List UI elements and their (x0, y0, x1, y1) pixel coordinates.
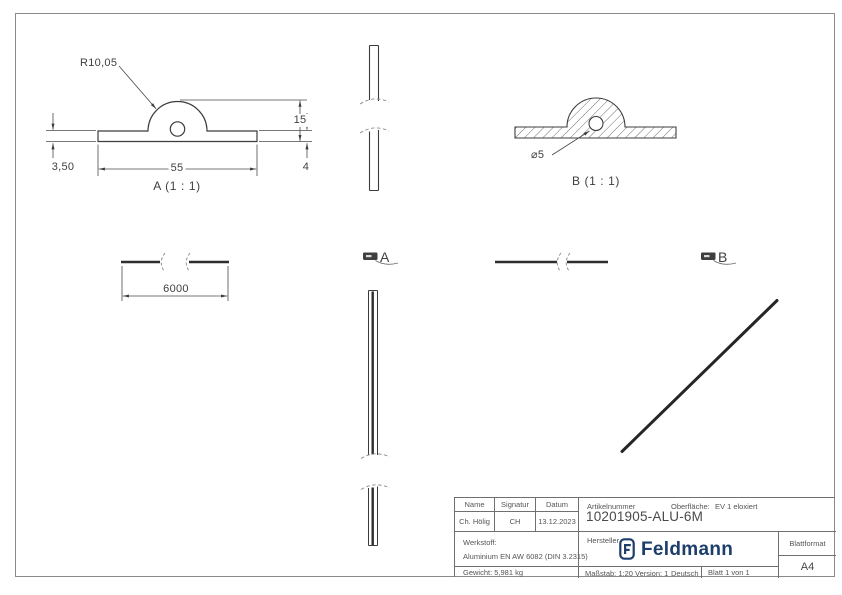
titleblock-header-name: Name (455, 498, 495, 512)
dim-thickness-left: 3,50 (52, 161, 75, 174)
gewicht-cell: Gewicht: 5,981 kg (455, 567, 579, 578)
brand-logo-icon (619, 538, 635, 560)
length-view-breaks (161, 253, 190, 271)
artikelnummer-cell: Artikelnummer Oberfläche: EV 1 eloxiert … (579, 498, 836, 532)
massstab-value: Maßstab: 1:20 (585, 569, 633, 578)
blattformat-value-cell: A4 (779, 556, 836, 578)
brand-logo: Feldmann (619, 532, 733, 566)
view-b-label: B (1 : 1) (572, 174, 620, 188)
view-arrow-a-letter: A (380, 250, 389, 264)
dim-height: 15 (292, 114, 309, 127)
dim-length: 6000 (163, 283, 189, 296)
titleblock-header-signatur: Signatur (495, 498, 536, 512)
view-a-label: A (1 : 1) (153, 179, 200, 193)
hersteller-label: Hersteller (587, 536, 619, 545)
break-lines-bottom (361, 454, 390, 490)
werkstoff-value: Aluminium EN AW 6082 (DIN 3.2315) (463, 552, 588, 561)
view-b-geometry (515, 98, 676, 138)
brand-wordmark: Feldmann (641, 540, 733, 559)
dim-width: 55 (169, 162, 186, 175)
blatt-cell: Blatt 1 von 1 (702, 567, 779, 578)
oberflaeche-value: EV 1 eloxiert (715, 502, 758, 511)
dim-hole-diameter: ⌀5 (531, 149, 544, 162)
sprache-value: Deutsch (671, 569, 699, 578)
profile-front-view-bottom (369, 291, 378, 546)
version-value: Version: 1 (635, 569, 668, 578)
break-lines-top (360, 99, 389, 133)
artikelnummer-value: 10201905-ALU-6M (586, 509, 703, 524)
isometric-view (622, 301, 777, 452)
view-a-geometry (98, 102, 257, 142)
title-block: Name Signatur Datum Ch. Hölig CH 13.12.2… (454, 497, 835, 577)
werkstoff-label: Werkstoff: (463, 538, 496, 547)
hersteller-cell: Hersteller Feldmann (579, 532, 779, 567)
titleblock-werkstoff-cell: Werkstoff: Aluminium EN AW 6082 (DIN 3.2… (455, 532, 579, 567)
titleblock-header-datum: Datum (536, 498, 579, 512)
dim-thickness-right: 4 (303, 161, 309, 174)
titleblock-value-signatur: CH (495, 512, 536, 532)
massstab-cell: Maßstab: 1:20 Version: 1 Deutsch (579, 567, 702, 578)
titleblock-value-datum: 13.12.2023 (536, 512, 579, 532)
profile-side-view-top (370, 46, 379, 191)
titleblock-value-name: Ch. Hölig (455, 512, 495, 532)
blattformat-label-cell: Blattformat (779, 532, 836, 556)
view-a-dimension-lines (46, 66, 312, 176)
dim-radius: R10,05 (80, 57, 117, 70)
view-arrow-b-letter: B (718, 250, 727, 264)
